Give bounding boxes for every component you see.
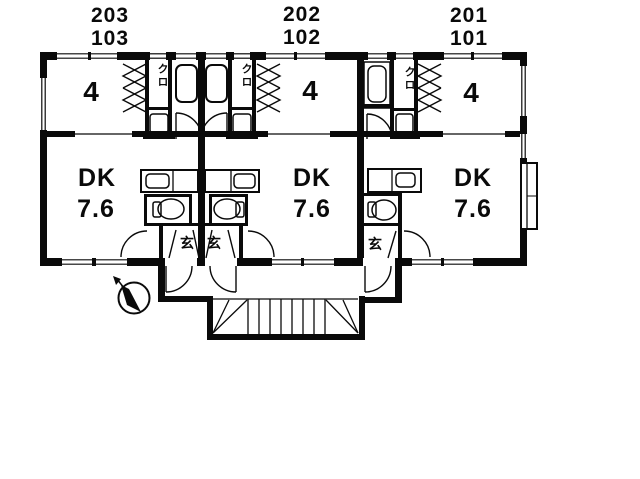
right-window-bay xyxy=(520,163,537,229)
closet-label-203: クロ xyxy=(150,63,167,111)
washbasin-201 xyxy=(396,114,413,133)
dk-label-201: DK xyxy=(442,166,504,191)
unit-number-201: 201 xyxy=(434,5,504,26)
unit-number-101: 101 xyxy=(434,28,504,49)
entrance-label-202: 玄 xyxy=(203,236,225,250)
bifold-closet-door-201 xyxy=(418,64,441,112)
floor-plan-drawing xyxy=(0,0,640,479)
kitchen-sink-203 xyxy=(146,174,169,188)
unit-number-103: 103 xyxy=(75,28,145,49)
tatami-room-label-201: 4 xyxy=(451,79,491,107)
north-arrow-icon xyxy=(113,276,150,314)
washbasin-202 xyxy=(233,114,251,133)
unit-number-203: 203 xyxy=(75,5,145,26)
floor-plan: 203 103 202 102 201 101 4 4 4 DK 7.6 DK … xyxy=(0,0,640,479)
kitchen-sink-201 xyxy=(396,173,415,187)
bathtub-203 xyxy=(176,65,197,102)
left-wall-window xyxy=(40,78,47,130)
kitchen-counter-201 xyxy=(368,169,421,192)
bifold-closet-door-203 xyxy=(123,64,146,112)
entrance-label-201: 玄 xyxy=(364,237,386,251)
dk-area-203: 7.6 xyxy=(65,197,127,222)
kitchen-sink-202 xyxy=(234,174,255,188)
washbasin-203 xyxy=(150,114,168,133)
party-walls xyxy=(198,60,364,258)
closet-label-201: クロ xyxy=(397,66,414,114)
entrance-door-swings xyxy=(166,266,391,292)
tatami-room-label-202: 4 xyxy=(290,77,330,105)
bathtub-202 xyxy=(206,65,227,102)
unit-number-202: 202 xyxy=(267,4,337,25)
staircase xyxy=(213,299,358,334)
toilet-202 xyxy=(214,199,244,219)
unit-number-102: 102 xyxy=(267,27,337,48)
dk-label-202: DK xyxy=(281,166,343,191)
tatami-room-label-203: 4 xyxy=(71,78,111,106)
interior-walls xyxy=(47,60,520,266)
toilet-201 xyxy=(368,200,396,220)
kitchen-counter-203 xyxy=(141,170,198,192)
fixtures xyxy=(141,62,421,258)
right-wall-windows xyxy=(520,66,527,158)
bifold-closet-door-202 xyxy=(257,64,280,112)
bathtub-201 xyxy=(364,62,390,108)
entrance-label-203: 玄 xyxy=(176,236,198,250)
dk-area-201: 7.6 xyxy=(442,197,504,222)
dk-label-203: DK xyxy=(66,166,128,191)
kitchen-counter-202 xyxy=(205,170,259,192)
toilet-203 xyxy=(153,199,184,219)
closet-label-202: クロ xyxy=(234,63,251,111)
dk-area-202: 7.6 xyxy=(281,197,343,222)
